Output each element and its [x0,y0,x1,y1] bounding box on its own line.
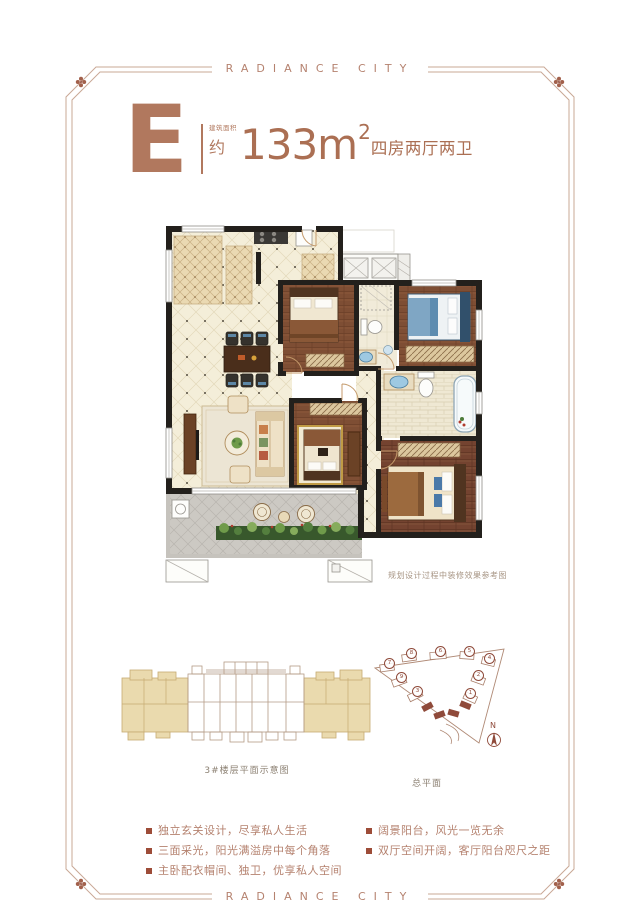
bedroom-1 [406,292,474,362]
area-prefix: 约 [209,134,237,158]
rooms-label: 四房两厅两卫 [371,135,473,162]
floorplan-caption: 规划设计过程中装修效果参考图 [300,570,507,581]
feature-item: 阔景阳台，风光一览无余 [366,824,596,837]
center-section [188,662,304,742]
site-building-number: 6 [435,646,446,657]
area-note: 建筑面积 [209,122,237,132]
site-building-number: 4 [484,653,495,664]
area-exponent: 2 [358,122,371,142]
brand-bottom: RADIANCE CITY [0,890,640,903]
bullet-square-icon [366,828,372,834]
floor-schematic [118,646,374,758]
unit-letter: E [124,94,188,188]
feature-item: 双厅空间开阔，客厅阳台咫尺之距 [366,844,596,857]
brand-top: RADIANCE CITY [0,62,640,75]
dining-set [224,332,270,387]
features-left: 独立玄关设计，尽享私人生活 三面采光，阳光满溢房中每个角落 主卧配衣帽间、独卫，… [146,824,376,884]
floor-plan-rendering [160,222,490,590]
features-right: 阔景阳台，风光一览无余 双厅空间开阔，客厅阳台咫尺之距 [366,824,596,864]
site-building-number: 7 [384,658,395,669]
elevator-lobby [340,230,410,282]
bullet-square-icon [146,868,152,874]
site-highlighted-buildings [421,700,472,719]
floor-schematic-caption: 3#楼层平面示意图 [157,763,337,776]
highlight-wings [122,670,370,740]
site-plan-caption: 总平面 [392,776,462,789]
title-area-line: 建筑面积 约 133m 2 四房两厅两卫 [209,122,473,162]
site-building-number: 3 [412,686,423,697]
feature-item: 三面采光，阳光满溢房中每个角落 [146,844,376,857]
north-label: N [485,721,501,730]
site-building-number: 5 [464,646,475,657]
stove-icon [254,230,288,244]
site-building-number: 2 [473,670,484,681]
site-building-number: 9 [396,672,407,683]
bullet-square-icon [146,828,152,834]
feature-item: 独立玄关设计，尽享私人生活 [146,824,376,837]
sofa [256,412,284,476]
site-building-number: 1 [465,688,476,699]
bullet-square-icon [366,848,372,854]
area-value: 133m [240,128,357,162]
compass-icon [488,732,501,747]
tv-cabinet [184,414,196,474]
title-divider [201,124,203,174]
bullet-square-icon [146,848,152,854]
poster-page: RADIANCE CITY RADIANCE CITY E 建筑面积 约 133… [0,0,640,920]
feature-item: 主卧配衣帽间、独卫，优享私人空间 [146,864,376,877]
site-building-number: 8 [406,648,417,659]
